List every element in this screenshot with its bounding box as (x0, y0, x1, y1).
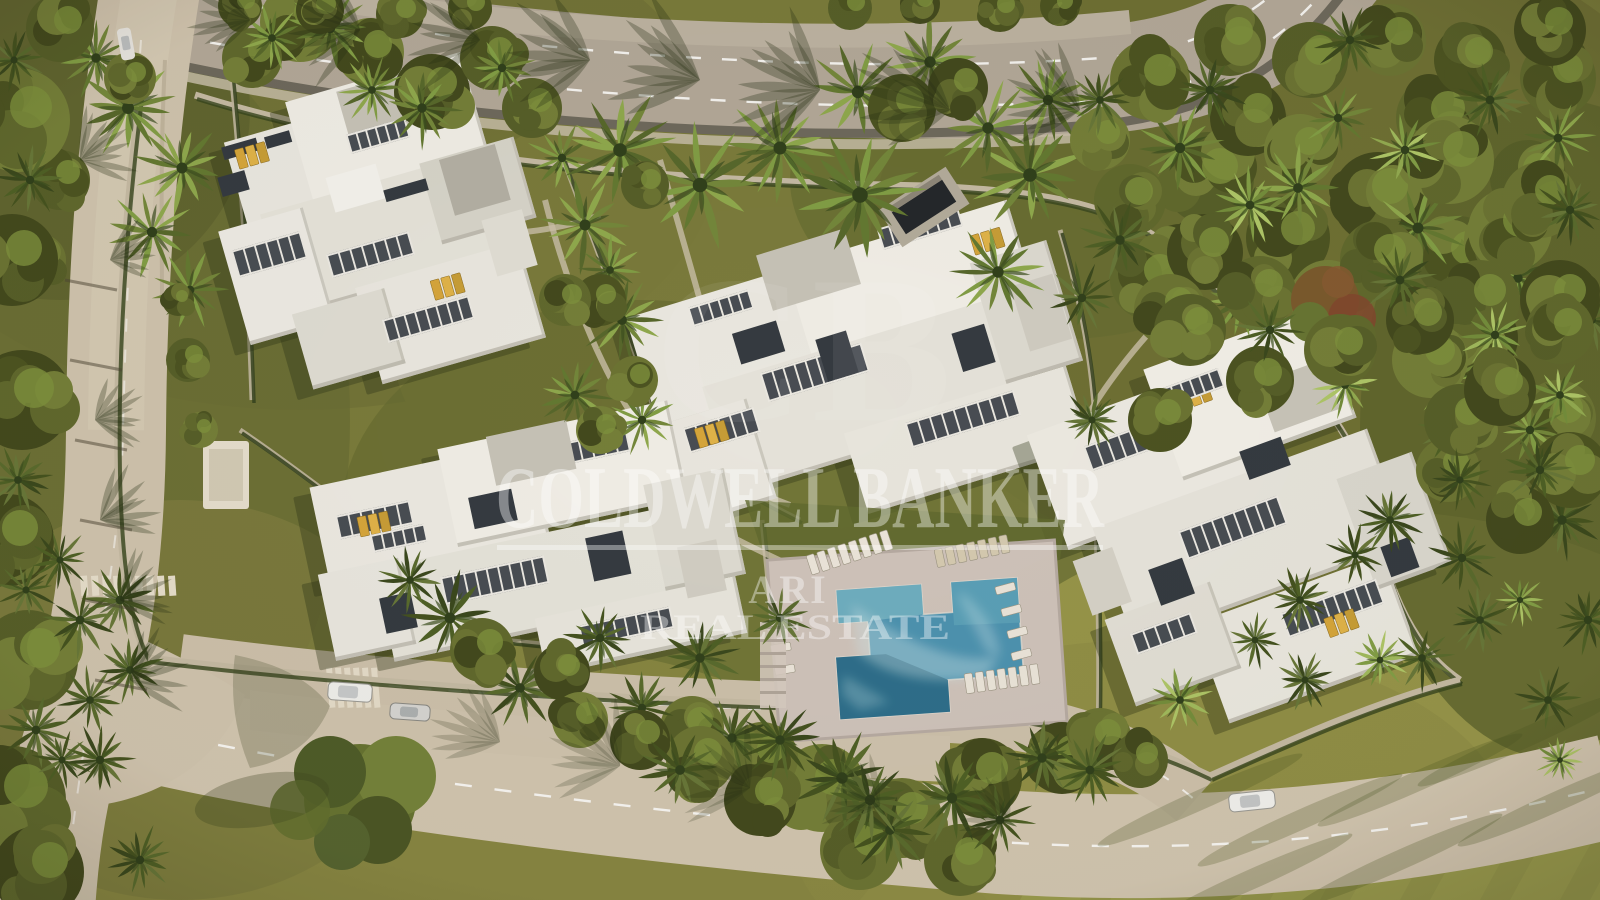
svg-text:REAL ESTATE: REAL ESTATE (640, 607, 950, 647)
svg-text:ARI: ARI (748, 567, 827, 612)
svg-text:COLDWELL BANKER: COLDWELL BANKER (496, 450, 1105, 547)
svg-text:CB: CB (654, 234, 958, 466)
